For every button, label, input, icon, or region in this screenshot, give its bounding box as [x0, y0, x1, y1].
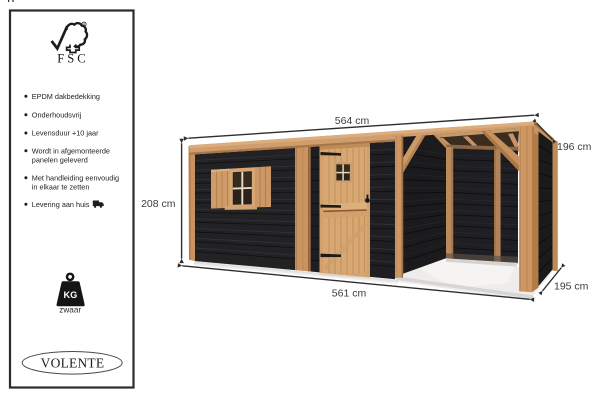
svg-text:564 cm: 564 cm	[335, 115, 370, 127]
svg-text:208 cm: 208 cm	[141, 198, 176, 210]
svg-text:Met handleiding eenvoudig: Met handleiding eenvoudig	[32, 173, 119, 182]
svg-text:zwaar: zwaar	[59, 305, 81, 314]
svg-text:196 cm: 196 cm	[557, 141, 592, 153]
svg-text:Wordt in afgemonteerde: Wordt in afgemonteerde	[32, 146, 110, 155]
svg-text:Levering aan huis: Levering aan huis	[32, 200, 90, 209]
svg-text:KG: KG	[64, 290, 78, 300]
svg-text:in elkaar te zetten: in elkaar te zetten	[32, 182, 90, 191]
svg-text:Onderhoudsvrij: Onderhoudsvrij	[32, 110, 82, 119]
svg-text:561 cm: 561 cm	[332, 287, 367, 299]
svg-text:Levensduur +10 jaar: Levensduur +10 jaar	[32, 129, 99, 138]
svg-text:195 cm: 195 cm	[554, 280, 589, 292]
svg-text:panelen geleverd: panelen geleverd	[32, 155, 88, 164]
svg-text:EPDM dakbedekking: EPDM dakbedekking	[32, 92, 100, 101]
svg-text:FSC: FSC	[57, 52, 88, 66]
svg-text:VOLENTE: VOLENTE	[41, 356, 105, 371]
